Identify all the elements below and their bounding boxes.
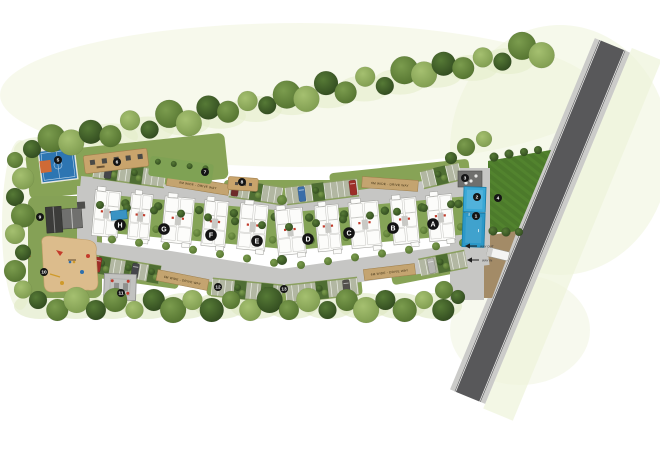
amenity-badge-basketball-court[interactable]: 5: [54, 156, 62, 164]
block-badge-g-label: G: [161, 227, 167, 234]
amenity-badge-outdoor-gym-label: 6: [116, 160, 119, 166]
block-badge-h[interactable]: H: [114, 219, 126, 231]
amenity-badge-kids-play-area-label: 10: [41, 270, 47, 276]
amenity-badge-party-pavilion[interactable]: 11: [117, 289, 125, 297]
block-badge-b-label: B: [390, 226, 395, 233]
amenity-badge-lawn[interactable]: 4: [494, 194, 502, 202]
amenity-badge-clubhouse-label: 9: [39, 215, 42, 221]
block-badge-h-label: H: [117, 223, 122, 230]
amenity-badge-basketball-court-label: 5: [57, 158, 60, 164]
way-in-label: WAY IN: [482, 258, 492, 262]
block-badge-c-label: C: [346, 231, 351, 238]
amenity-badge-south-green[interactable]: 13: [280, 285, 288, 293]
kids-play-area: [42, 236, 98, 292]
amenity-badge-party-pavilion-label: 11: [118, 291, 123, 297]
block-badge-g[interactable]: G: [158, 223, 170, 235]
amenity-badge-clubhouse[interactable]: 9: [36, 213, 44, 221]
block-badge-e[interactable]: E: [251, 235, 263, 247]
block-badge-e-label: E: [255, 239, 260, 246]
block-badge-a[interactable]: A: [427, 218, 439, 230]
amenity-badge-south-lawn-label: 12: [215, 285, 221, 291]
block-badge-b[interactable]: B: [387, 222, 399, 234]
amenity-badge-swimming-pool-label: 1: [475, 214, 478, 220]
master-plan: 6M WIDE - DRIVE WAY6M WIDE - DRIVE WAY6M…: [0, 0, 660, 460]
amenity-badge-kids-play-area[interactable]: 10: [40, 268, 48, 276]
amenity-badge-south-lawn[interactable]: 12: [214, 283, 222, 291]
amenity-badge-lawn-strip[interactable]: 7: [201, 168, 209, 176]
block-badge-d[interactable]: D: [302, 233, 314, 245]
amenity-badge-lawn-strip-label: 7: [204, 170, 207, 176]
block-badge-f-label: F: [209, 233, 214, 240]
water-feature: [111, 210, 128, 221]
amenity-badge-seating-area-label: 8: [241, 180, 244, 186]
amenity-badge-kids-pool[interactable]: 2: [473, 193, 481, 201]
amenity-badge-pool-pavilion-label: 3: [464, 176, 467, 182]
amenity-badge-pool-pavilion[interactable]: 3: [461, 174, 469, 182]
amenity-badge-seating-area[interactable]: 8: [238, 178, 246, 186]
amenity-badge-kids-pool-label: 2: [476, 195, 479, 201]
way-out-label: WAY OUT: [480, 244, 494, 248]
amenity-badge-outdoor-gym[interactable]: 6: [113, 158, 121, 166]
block-badge-c[interactable]: C: [343, 227, 355, 239]
block-badge-f[interactable]: F: [205, 229, 217, 241]
amenity-badge-swimming-pool[interactable]: 1: [472, 212, 480, 220]
block-badge-a-label: A: [430, 222, 435, 229]
amenity-badge-lawn-label: 4: [497, 196, 500, 202]
site-plan-canvas: 6M WIDE - DRIVE WAY6M WIDE - DRIVE WAY6M…: [0, 0, 660, 460]
block-badge-d-label: D: [305, 237, 310, 244]
amenity-badge-south-green-label: 13: [281, 287, 287, 293]
